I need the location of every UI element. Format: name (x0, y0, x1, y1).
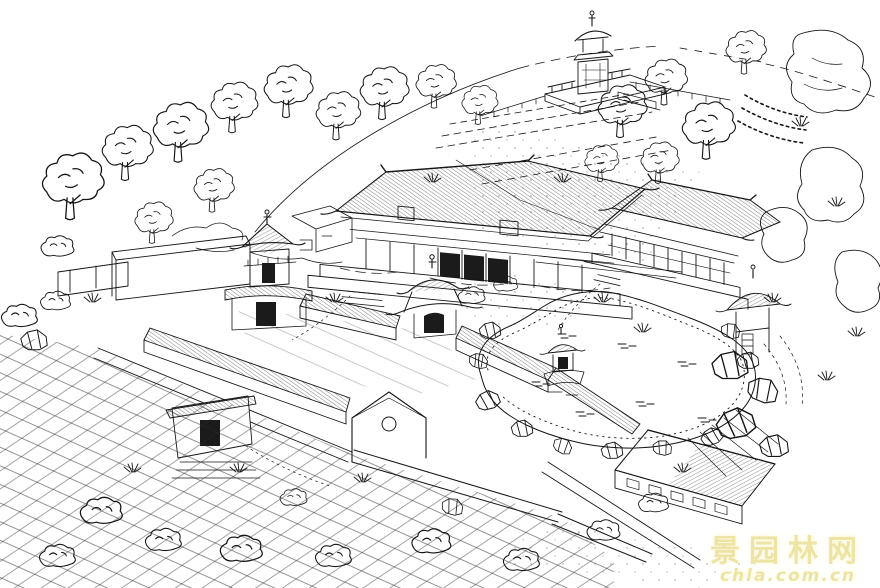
garden-line-drawing (0, 0, 880, 588)
hilltop-tower-pavilion (480, 11, 730, 116)
illustration-canvas: 景园林网 chla.com.cn (0, 0, 880, 588)
corridor-gable-wall (352, 392, 426, 462)
right-rockery (738, 30, 880, 380)
northwest-terrace (58, 236, 250, 300)
